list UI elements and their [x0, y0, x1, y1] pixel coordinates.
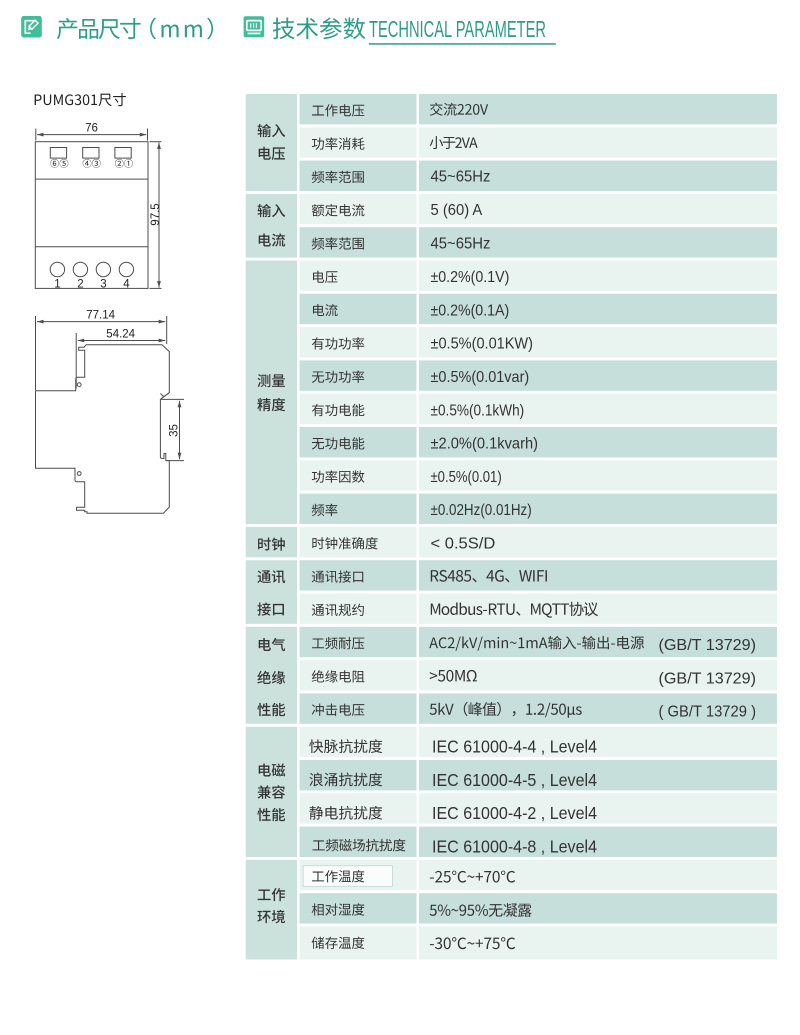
- svg-text:±0.2%(0.1V): ±0.2%(0.1V): [431, 269, 510, 286]
- svg-text:76: 76: [85, 123, 98, 135]
- svg-text:45~65Hz: 45~65Hz: [431, 235, 491, 252]
- svg-text:TECHNICAL PARAMETER: TECHNICAL PARAMETER: [369, 16, 546, 42]
- svg-text:4: 4: [123, 279, 130, 291]
- svg-text:1: 1: [54, 279, 60, 291]
- svg-text:±0.02Hz(0.01Hz): ±0.02Hz(0.01Hz): [431, 502, 532, 519]
- svg-text:77.14: 77.14: [86, 309, 115, 321]
- svg-text:IEC 61000-4-5 , Level4: IEC 61000-4-5 , Level4: [432, 770, 597, 790]
- svg-text:±2.0%(0.1kvarh): ±2.0%(0.1kvarh): [431, 436, 539, 453]
- svg-text:IEC 61000-4-4 , Level4: IEC 61000-4-4 , Level4: [432, 737, 597, 757]
- svg-text:±0.5%(0.01): ±0.5%(0.01): [431, 469, 502, 486]
- svg-text:( GB/T 13729 ): ( GB/T 13729 ): [659, 704, 757, 721]
- svg-text:IEC 61000-4-2 , Level4: IEC 61000-4-2 , Level4: [432, 803, 597, 823]
- svg-text:(GB/T 13729): (GB/T 13729): [659, 637, 757, 654]
- svg-text:2: 2: [77, 279, 83, 291]
- svg-text:(GB/T 13729): (GB/T 13729): [659, 670, 757, 687]
- svg-text:3: 3: [100, 279, 106, 291]
- svg-text:±0.5%(0.1kWh): ±0.5%(0.1kWh): [431, 402, 525, 419]
- svg-text:97.5: 97.5: [150, 203, 162, 225]
- svg-text:±0.2%(0.1A): ±0.2%(0.1A): [431, 302, 510, 319]
- svg-text:45~65Hz: 45~65Hz: [431, 169, 491, 186]
- svg-text:±0.5%(0.01KW): ±0.5%(0.01KW): [431, 336, 534, 353]
- svg-text:IEC 61000-4-8 , Level4: IEC 61000-4-8 , Level4: [432, 836, 597, 856]
- svg-text:35: 35: [168, 424, 180, 437]
- svg-text:< 0.5S/D: < 0.5S/D: [431, 535, 496, 552]
- svg-text:±0.5%(0.01var): ±0.5%(0.01var): [431, 369, 530, 386]
- svg-text:54.24: 54.24: [106, 328, 135, 340]
- svg-text:5 (60) A: 5 (60) A: [431, 202, 483, 219]
